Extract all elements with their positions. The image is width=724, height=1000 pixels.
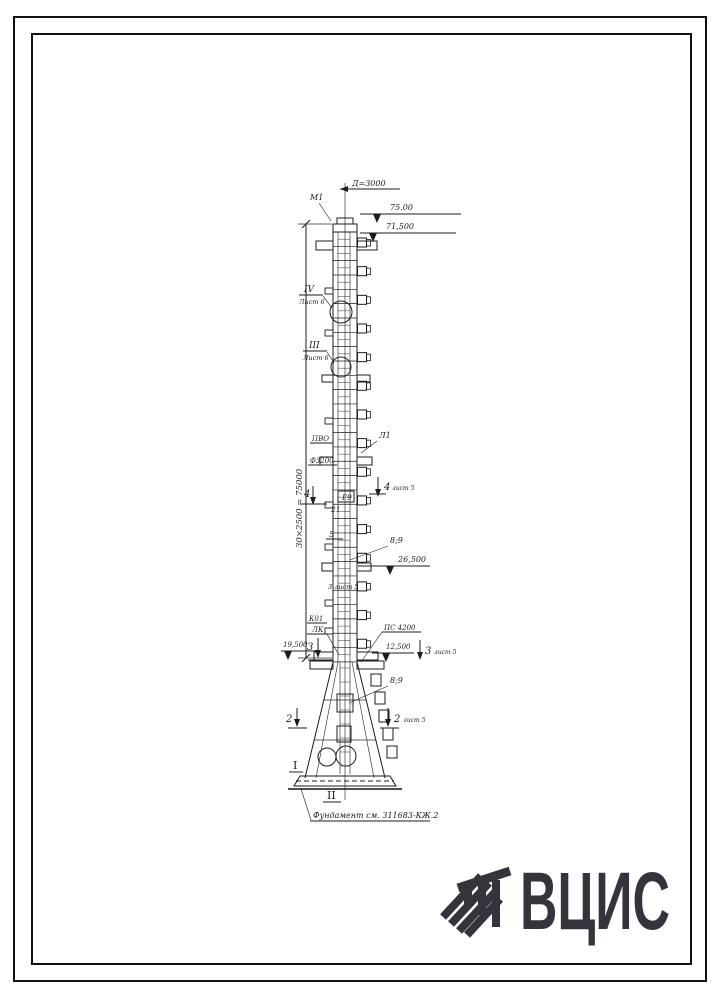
lamp-bracket [358, 639, 367, 648]
lamp-bracket [358, 267, 367, 276]
lamp-bracket-tip [367, 325, 371, 332]
lamp-bracket [358, 353, 367, 362]
cut-4-left-numeral: 4 [303, 489, 310, 500]
base-side-plate [387, 746, 397, 758]
l1-label: Л1 [378, 431, 391, 440]
lamp-bracket-tip [367, 240, 371, 247]
n5-label: 5 [329, 530, 334, 539]
cut-4-right-numeral: 4 [383, 482, 390, 493]
left-flange [325, 418, 333, 424]
platform-plate [357, 563, 371, 571]
section-circle-3 [331, 357, 351, 377]
cut-2-right-sheet: лист 5 [403, 717, 426, 724]
annotations: Д=3000 М1 75.00 71,500 30×2500 = 75000 I… [281, 179, 461, 821]
lamp-bracket [358, 295, 367, 304]
cut-3-right-numeral: 3 [425, 646, 431, 657]
base-side-plate [375, 692, 385, 704]
lamp-bracket-tip [367, 297, 371, 304]
ps4200-label: ПС 4200 [383, 624, 416, 632]
vcis-logo-text: ВЦИС [520, 856, 670, 947]
cut-4-right-arrowhead [375, 489, 381, 497]
elevation-19500-arrow [284, 651, 292, 660]
cut-3-right-arrowhead [417, 652, 423, 660]
lk-label: ЛК [311, 626, 324, 634]
left-flange [325, 330, 333, 336]
g9-label: Г9 [341, 493, 352, 502]
cut-4-right-sheet: лист 5 [392, 485, 415, 492]
b89-lower-leader [349, 686, 388, 703]
lamp-bracket [358, 439, 367, 448]
top-diameter-label: Д=3000 [351, 179, 386, 188]
cut-2-right-numeral: 2 [393, 714, 400, 725]
section-3-numeral: III [308, 341, 320, 351]
b89-upper-leader [350, 546, 388, 560]
lamp-bracket [358, 324, 367, 333]
n21-label: 21 [330, 505, 341, 514]
lamp-bracket [358, 525, 367, 534]
lamp-bracket-tip [367, 440, 371, 447]
lamp-bracket-tip [367, 641, 371, 648]
platform-plate [357, 661, 384, 669]
lamp-bracket [358, 582, 367, 591]
roman-2-label: II [327, 789, 336, 802]
mast-brackets [358, 238, 371, 648]
cut-3-right-sheet: лист 5 [434, 649, 457, 656]
base-circle-1 [318, 748, 336, 766]
lamp-bracket-tip [367, 354, 371, 361]
base-side-plate [383, 728, 393, 740]
lamp-bracket-tip [367, 469, 371, 476]
lamp-bracket [358, 410, 367, 419]
platform-plate [322, 375, 333, 382]
platform-plate [316, 241, 333, 250]
b89-lower-label: 8;9 [390, 676, 403, 685]
elevation-26500-arrow [386, 566, 394, 575]
cut-2-left-arrowhead [294, 719, 300, 727]
section-3-sheet: Лист 6 [302, 354, 329, 362]
lamp-bracket [358, 381, 367, 390]
lamp-bracket-tip [367, 411, 371, 418]
foundation-leader [301, 789, 311, 820]
mid-note-label: 3 лист 5 [328, 583, 359, 591]
cut-2-left-numeral: 2 [285, 714, 292, 725]
roman-1-label: I [293, 759, 297, 772]
k01-label: К01 [308, 615, 323, 623]
tower-drawing: Д=3000 М1 75.00 71,500 30×2500 = 75000 I… [0, 0, 724, 1000]
lamp-bracket-tip [367, 526, 371, 533]
elevation-75-arrow [373, 214, 381, 223]
lamp-bracket-tip [367, 555, 371, 562]
lamp-bracket [358, 611, 367, 620]
section-4-sheet: Лист 6 [298, 298, 325, 306]
l1-leader [361, 441, 377, 453]
elevation-19500-label: 19,500 [283, 641, 308, 649]
vertical-dim-label: 30×2500 = 75000 [295, 468, 305, 548]
drawing-sheet: Д=3000 М1 75.00 71,500 30×2500 = 75000 I… [0, 0, 724, 1000]
cut-3-left-arrowhead [315, 650, 321, 658]
vcis-logo: ВЦИС [443, 856, 670, 947]
platform-plate [310, 661, 333, 669]
platform-plate [322, 563, 333, 571]
elevation-26500-label: 26,500 [397, 555, 426, 564]
elevation-75-label: 75.00 [390, 203, 413, 212]
cut-3-left-numeral: 3 [307, 642, 313, 653]
left-flange [325, 288, 333, 294]
left-flange [325, 600, 333, 606]
lamp-bracket-tip [367, 383, 371, 390]
b89-upper-label: 8;9 [390, 536, 403, 545]
top-diameter-arrow [340, 186, 348, 192]
f3200-label: Ф3200 [310, 457, 334, 465]
lamp-bracket-tip [367, 583, 371, 590]
base-panel [337, 726, 351, 742]
mast-joints [333, 232, 357, 662]
vcis-logo-icon [443, 871, 510, 935]
section-4-numeral: IV [303, 285, 316, 295]
lamp-bracket [358, 467, 367, 476]
cut-2-right-arrowhead [385, 719, 391, 727]
ps4200-leader [361, 632, 382, 662]
lamp-bracket [358, 496, 367, 505]
left-flange [325, 544, 333, 550]
foundation-note: Фундамент см. 311683-КЖ.2 [313, 811, 438, 820]
mark-m1-label: М1 [309, 193, 323, 202]
mark-m1-leader [319, 203, 331, 221]
left-flange [325, 628, 333, 634]
lamp-bracket-tip [367, 497, 371, 504]
lamp-bracket-tip [367, 612, 371, 619]
base-side-plate [371, 674, 381, 686]
pvo-label: ПВО [311, 435, 329, 443]
platform-plate [357, 457, 372, 465]
base-circle-2 [336, 746, 356, 766]
lamp-bracket [358, 238, 367, 247]
elevation-12500-label: 12,500 [386, 643, 411, 651]
lamp-bracket-tip [367, 268, 371, 275]
elevation-71500-label: 71,500 [386, 222, 414, 231]
